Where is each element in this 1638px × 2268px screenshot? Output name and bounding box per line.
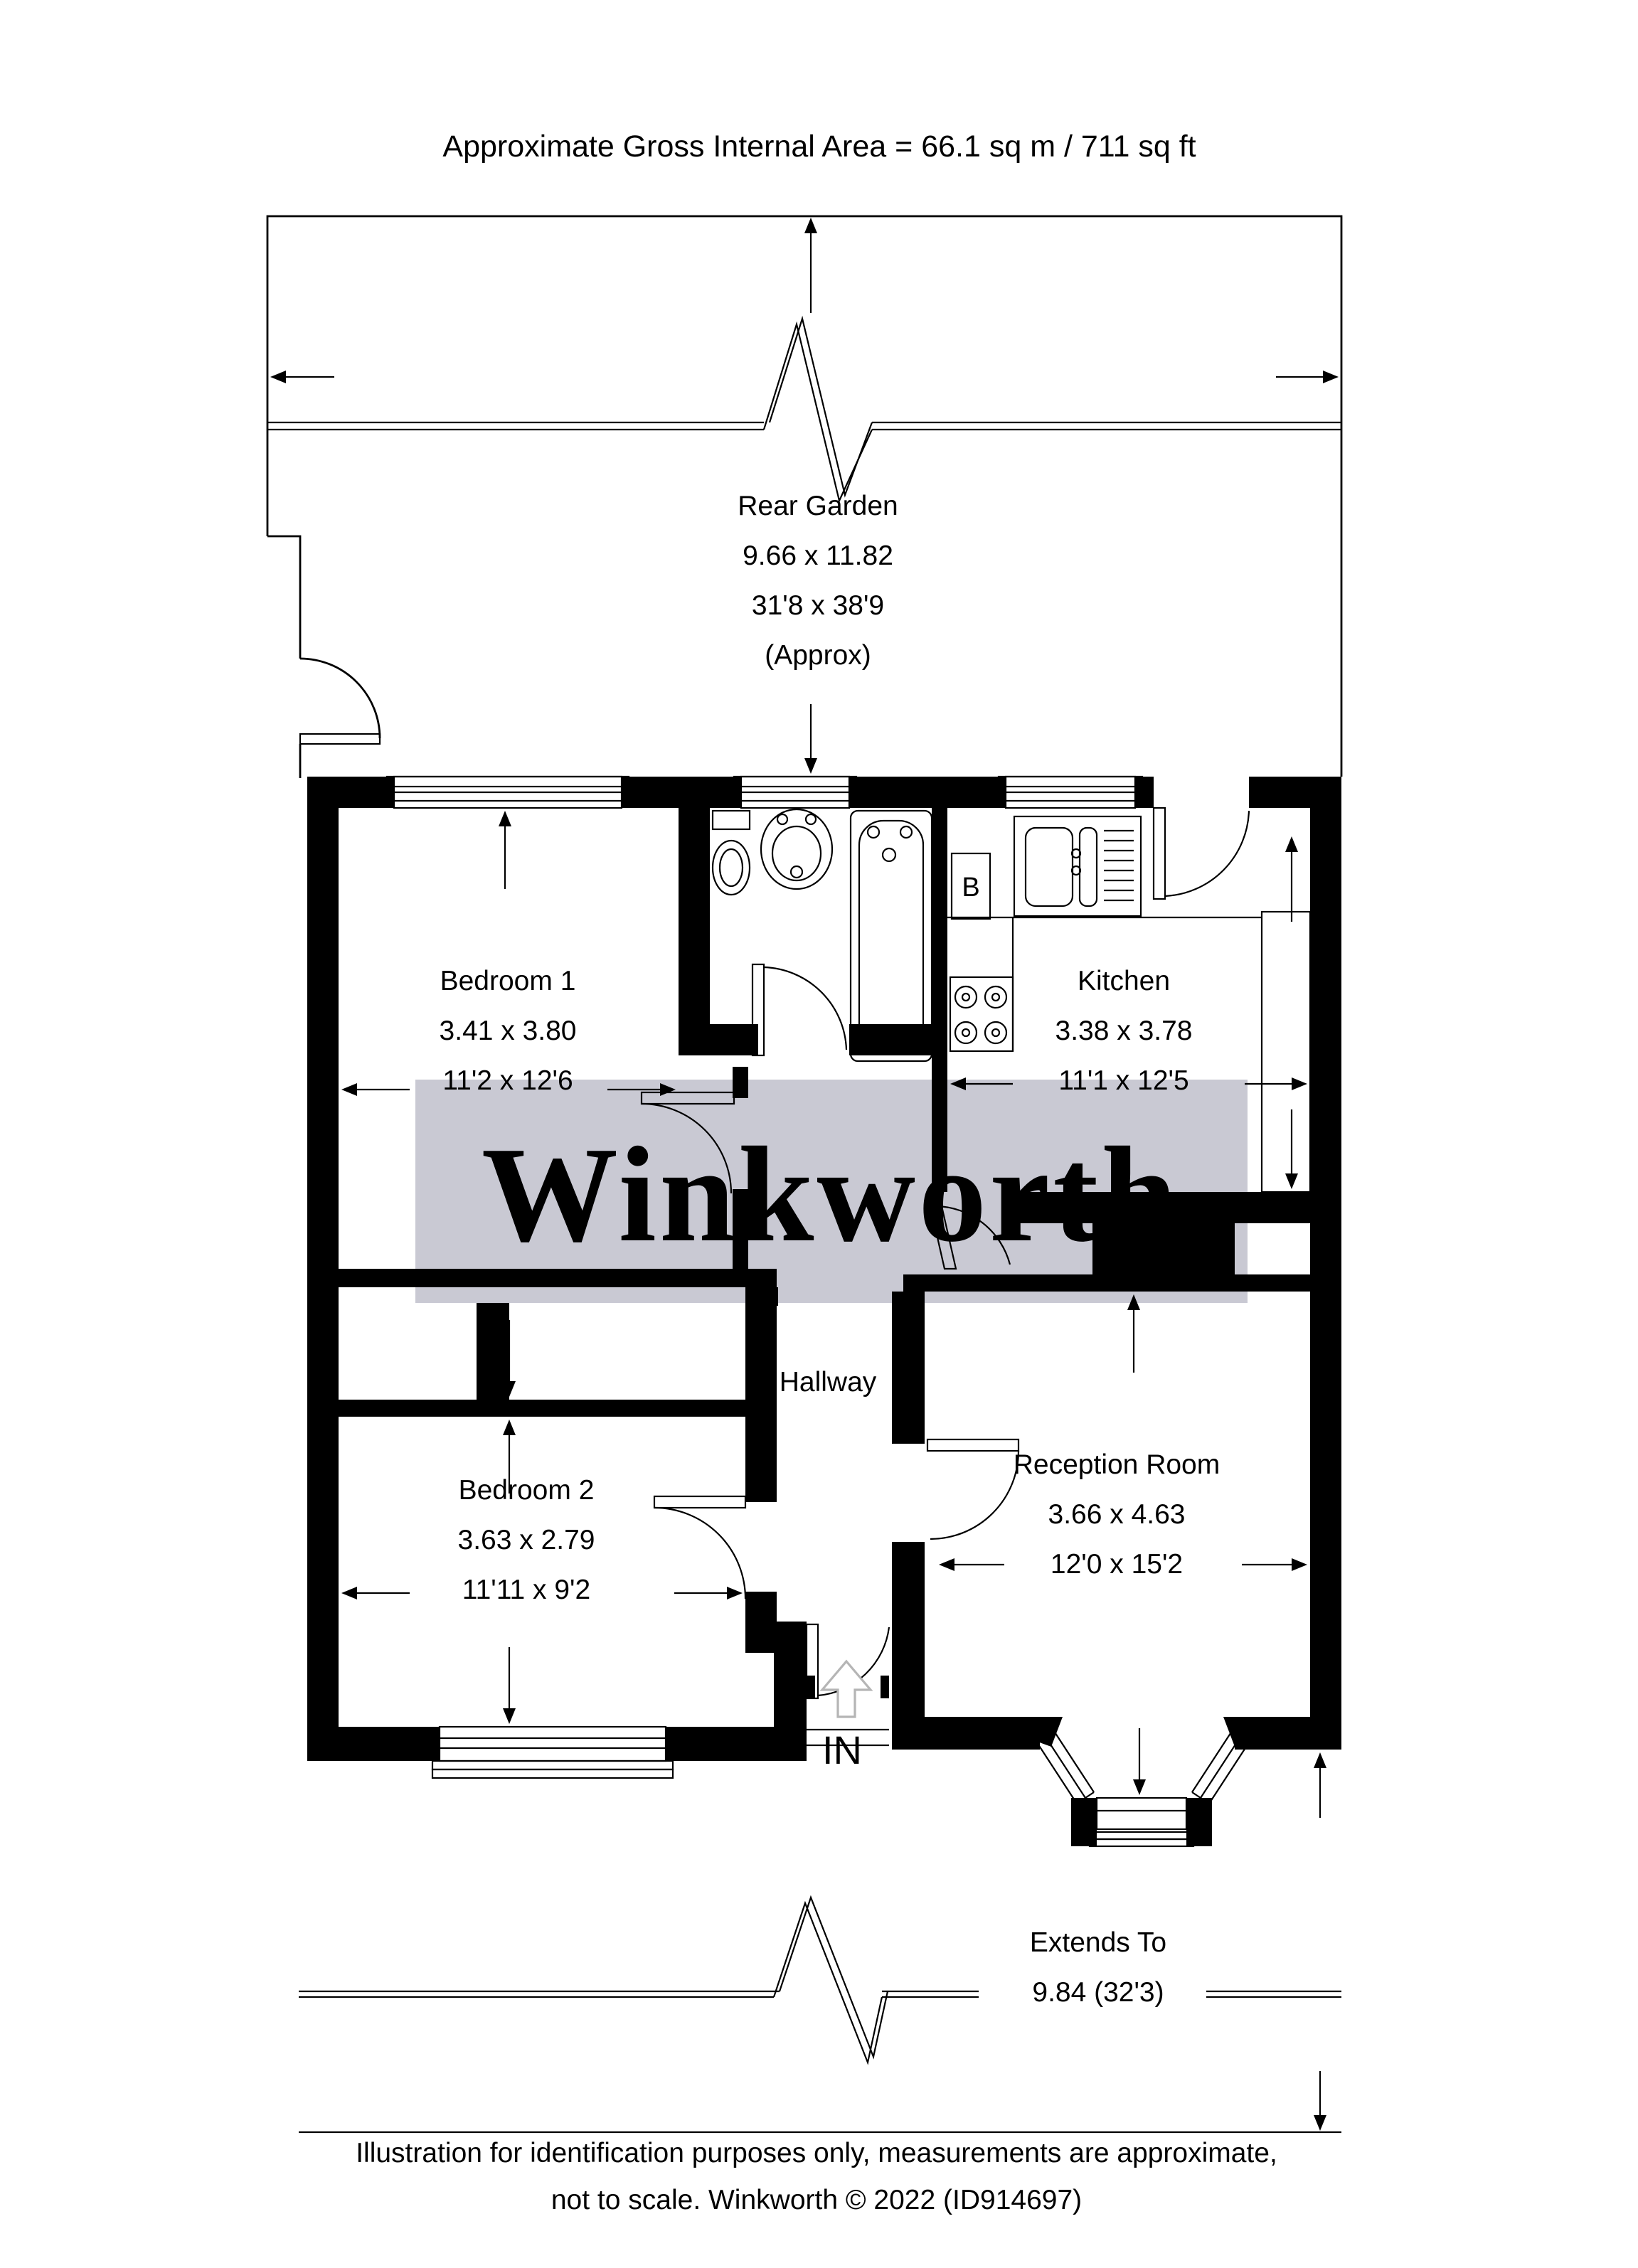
wall-rec-west xyxy=(892,1542,925,1717)
label-garden-metric: 9.66 x 11.82 xyxy=(743,541,893,571)
porch-step xyxy=(881,1676,889,1698)
garden-gate-arc xyxy=(300,659,380,738)
wall-mid xyxy=(307,1269,777,1287)
label-reception-metric: 3.66 x 4.63 xyxy=(1048,1499,1186,1530)
bath-tap xyxy=(868,826,879,838)
label-kitchen-metric: 3.38 x 3.78 xyxy=(1055,1016,1193,1046)
wall-front xyxy=(307,1727,440,1761)
bath-tap xyxy=(900,826,912,838)
hob-ring xyxy=(955,1022,977,1043)
door-bed2-arc xyxy=(654,1508,745,1599)
wall-right xyxy=(1310,777,1341,1750)
window-bed2 xyxy=(440,1727,666,1761)
label-reception-imperial: 12'0 x 15'2 xyxy=(1051,1549,1183,1580)
door-back-arc xyxy=(1165,811,1249,896)
boiler-label: B xyxy=(962,873,979,903)
label-bed2-metric: 3.63 x 2.79 xyxy=(458,1525,595,1555)
door-bed2-leaf xyxy=(654,1496,745,1508)
label-bed2-name: Bedroom 2 xyxy=(459,1475,595,1506)
porch-pillar-left xyxy=(774,1653,807,1761)
door-bath-arc xyxy=(764,967,846,1050)
wall-reception-bottom xyxy=(892,1717,1040,1750)
basin-tap xyxy=(777,814,787,824)
wall-entry xyxy=(745,1622,807,1653)
fence-break xyxy=(770,319,872,495)
label-hallway: Hallway xyxy=(780,1367,877,1397)
footer-line1: Illustration for identification purposes… xyxy=(356,2138,1277,2168)
wall-bed1-bath xyxy=(679,808,710,1055)
wall-bed1-pier xyxy=(733,1067,748,1098)
counter-right-unit xyxy=(1262,912,1310,1192)
floorplan-drawing: Approximate Gross Internal Area = 66.1 s… xyxy=(0,0,1638,2268)
label-extends-2: 9.84 (32'3) xyxy=(1032,1977,1164,2008)
label-garden-imperial: 31'8 x 38'9 xyxy=(752,590,884,621)
label-extends-1: Extends To xyxy=(1030,1927,1166,1958)
floorplan-page: Approximate Gross Internal Area = 66.1 s… xyxy=(0,0,1638,2268)
wall-closet xyxy=(477,1303,509,1400)
label-garden-note: (Approx) xyxy=(765,640,871,671)
bath-drain xyxy=(883,848,895,861)
wall-bath-kitchen xyxy=(932,808,947,1192)
garden-gate-leaf xyxy=(300,734,380,744)
label-reception-name: Reception Room xyxy=(1014,1449,1220,1480)
wall-top xyxy=(622,777,741,808)
window-bay-front xyxy=(1097,1798,1186,1829)
hob-ring xyxy=(955,986,977,1008)
toilet-cistern xyxy=(713,811,750,829)
label-bed1-name: Bedroom 1 xyxy=(440,966,576,996)
sink-drainer xyxy=(1104,831,1134,900)
label-in: IN xyxy=(822,1727,862,1772)
label-garden-name: Rear Garden xyxy=(738,491,898,521)
bathroom-fixtures xyxy=(713,809,932,1061)
wall-reception-top xyxy=(903,1274,1341,1292)
wall-bed2-top xyxy=(307,1400,777,1417)
entrance-arrow xyxy=(822,1661,871,1717)
wall-top xyxy=(849,777,1006,808)
windows xyxy=(387,777,1252,1846)
wall-top xyxy=(1135,777,1154,808)
in-arrow-icon xyxy=(822,1661,871,1717)
label-bed2-imperial: 11'11 x 9'2 xyxy=(462,1575,590,1605)
basin-drain xyxy=(791,866,802,878)
wall-rec-west xyxy=(892,1292,925,1444)
footer-line2: not to scale. Winkworth © 2022 (ID914697… xyxy=(551,2185,1082,2215)
wall-hall-west xyxy=(745,1287,777,1502)
door-reception-arc xyxy=(930,1451,1019,1539)
garden-left-step xyxy=(267,536,300,659)
page-title: Approximate Gross Internal Area = 66.1 s… xyxy=(442,129,1196,164)
sink-bowl xyxy=(1026,828,1073,906)
label-kitchen-imperial: 11'1 x 12'5 xyxy=(1058,1065,1188,1096)
basin-tap xyxy=(806,814,816,824)
door-reception-leaf xyxy=(927,1439,1019,1451)
wall-bath-bottom xyxy=(679,1024,758,1055)
fence-break xyxy=(764,324,872,501)
label-kitchen-name: Kitchen xyxy=(1078,966,1170,996)
hob-ring xyxy=(985,1022,1006,1043)
wall-kitchen-mass xyxy=(1092,1212,1235,1274)
porch-step xyxy=(807,1676,815,1698)
bathtub-inner xyxy=(859,821,923,1051)
label-bed1-imperial: 11'2 x 12'6 xyxy=(442,1065,573,1096)
hob-ring xyxy=(985,986,1006,1008)
extends-line xyxy=(299,1897,1341,2132)
label-bed1-metric: 3.41 x 3.80 xyxy=(440,1016,577,1046)
sink-halfbowl xyxy=(1080,828,1097,906)
door-back-leaf xyxy=(1154,808,1165,899)
